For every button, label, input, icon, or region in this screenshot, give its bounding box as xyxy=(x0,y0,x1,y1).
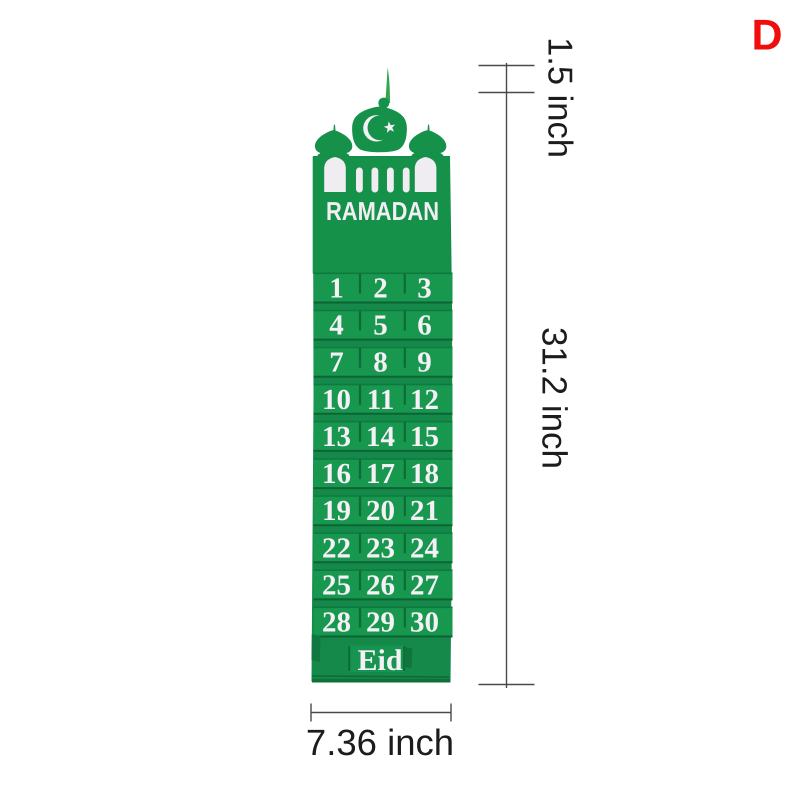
svg-text:2: 2 xyxy=(373,273,388,305)
svg-text:15: 15 xyxy=(410,421,439,453)
svg-text:1: 1 xyxy=(329,273,344,305)
svg-text:17: 17 xyxy=(366,458,395,490)
svg-text:18: 18 xyxy=(410,458,439,490)
svg-text:31.2 inch: 31.2 inch xyxy=(535,327,574,469)
svg-text:5: 5 xyxy=(373,310,388,342)
svg-text:24: 24 xyxy=(410,532,439,564)
svg-text:10: 10 xyxy=(322,384,351,416)
svg-text:25: 25 xyxy=(322,569,351,601)
svg-text:RAMADAN: RAMADAN xyxy=(326,196,439,226)
svg-text:6: 6 xyxy=(417,310,432,342)
svg-text:1.5 inch: 1.5 inch xyxy=(541,37,579,158)
svg-text:12: 12 xyxy=(410,384,439,416)
svg-text:26: 26 xyxy=(366,569,395,601)
svg-text:14: 14 xyxy=(366,421,395,453)
svg-text:30: 30 xyxy=(410,607,439,639)
svg-text:7: 7 xyxy=(329,347,344,379)
svg-text:7.36 inch: 7.36 inch xyxy=(306,722,454,763)
svg-text:11: 11 xyxy=(367,384,394,416)
svg-text:9: 9 xyxy=(417,347,432,379)
svg-text:22: 22 xyxy=(322,532,351,564)
svg-text:4: 4 xyxy=(329,310,344,342)
svg-text:23: 23 xyxy=(366,532,395,564)
svg-text:21: 21 xyxy=(410,495,439,527)
svg-text:27: 27 xyxy=(410,569,439,601)
svg-text:8: 8 xyxy=(373,347,388,379)
svg-text:3: 3 xyxy=(417,273,432,305)
svg-text:D: D xyxy=(752,12,783,60)
svg-text:Eid: Eid xyxy=(357,644,402,677)
svg-text:28: 28 xyxy=(322,607,351,639)
svg-text:20: 20 xyxy=(366,495,395,527)
svg-text:19: 19 xyxy=(322,495,351,527)
svg-text:13: 13 xyxy=(322,421,351,453)
svg-text:16: 16 xyxy=(322,458,351,490)
svg-text:29: 29 xyxy=(366,607,395,639)
